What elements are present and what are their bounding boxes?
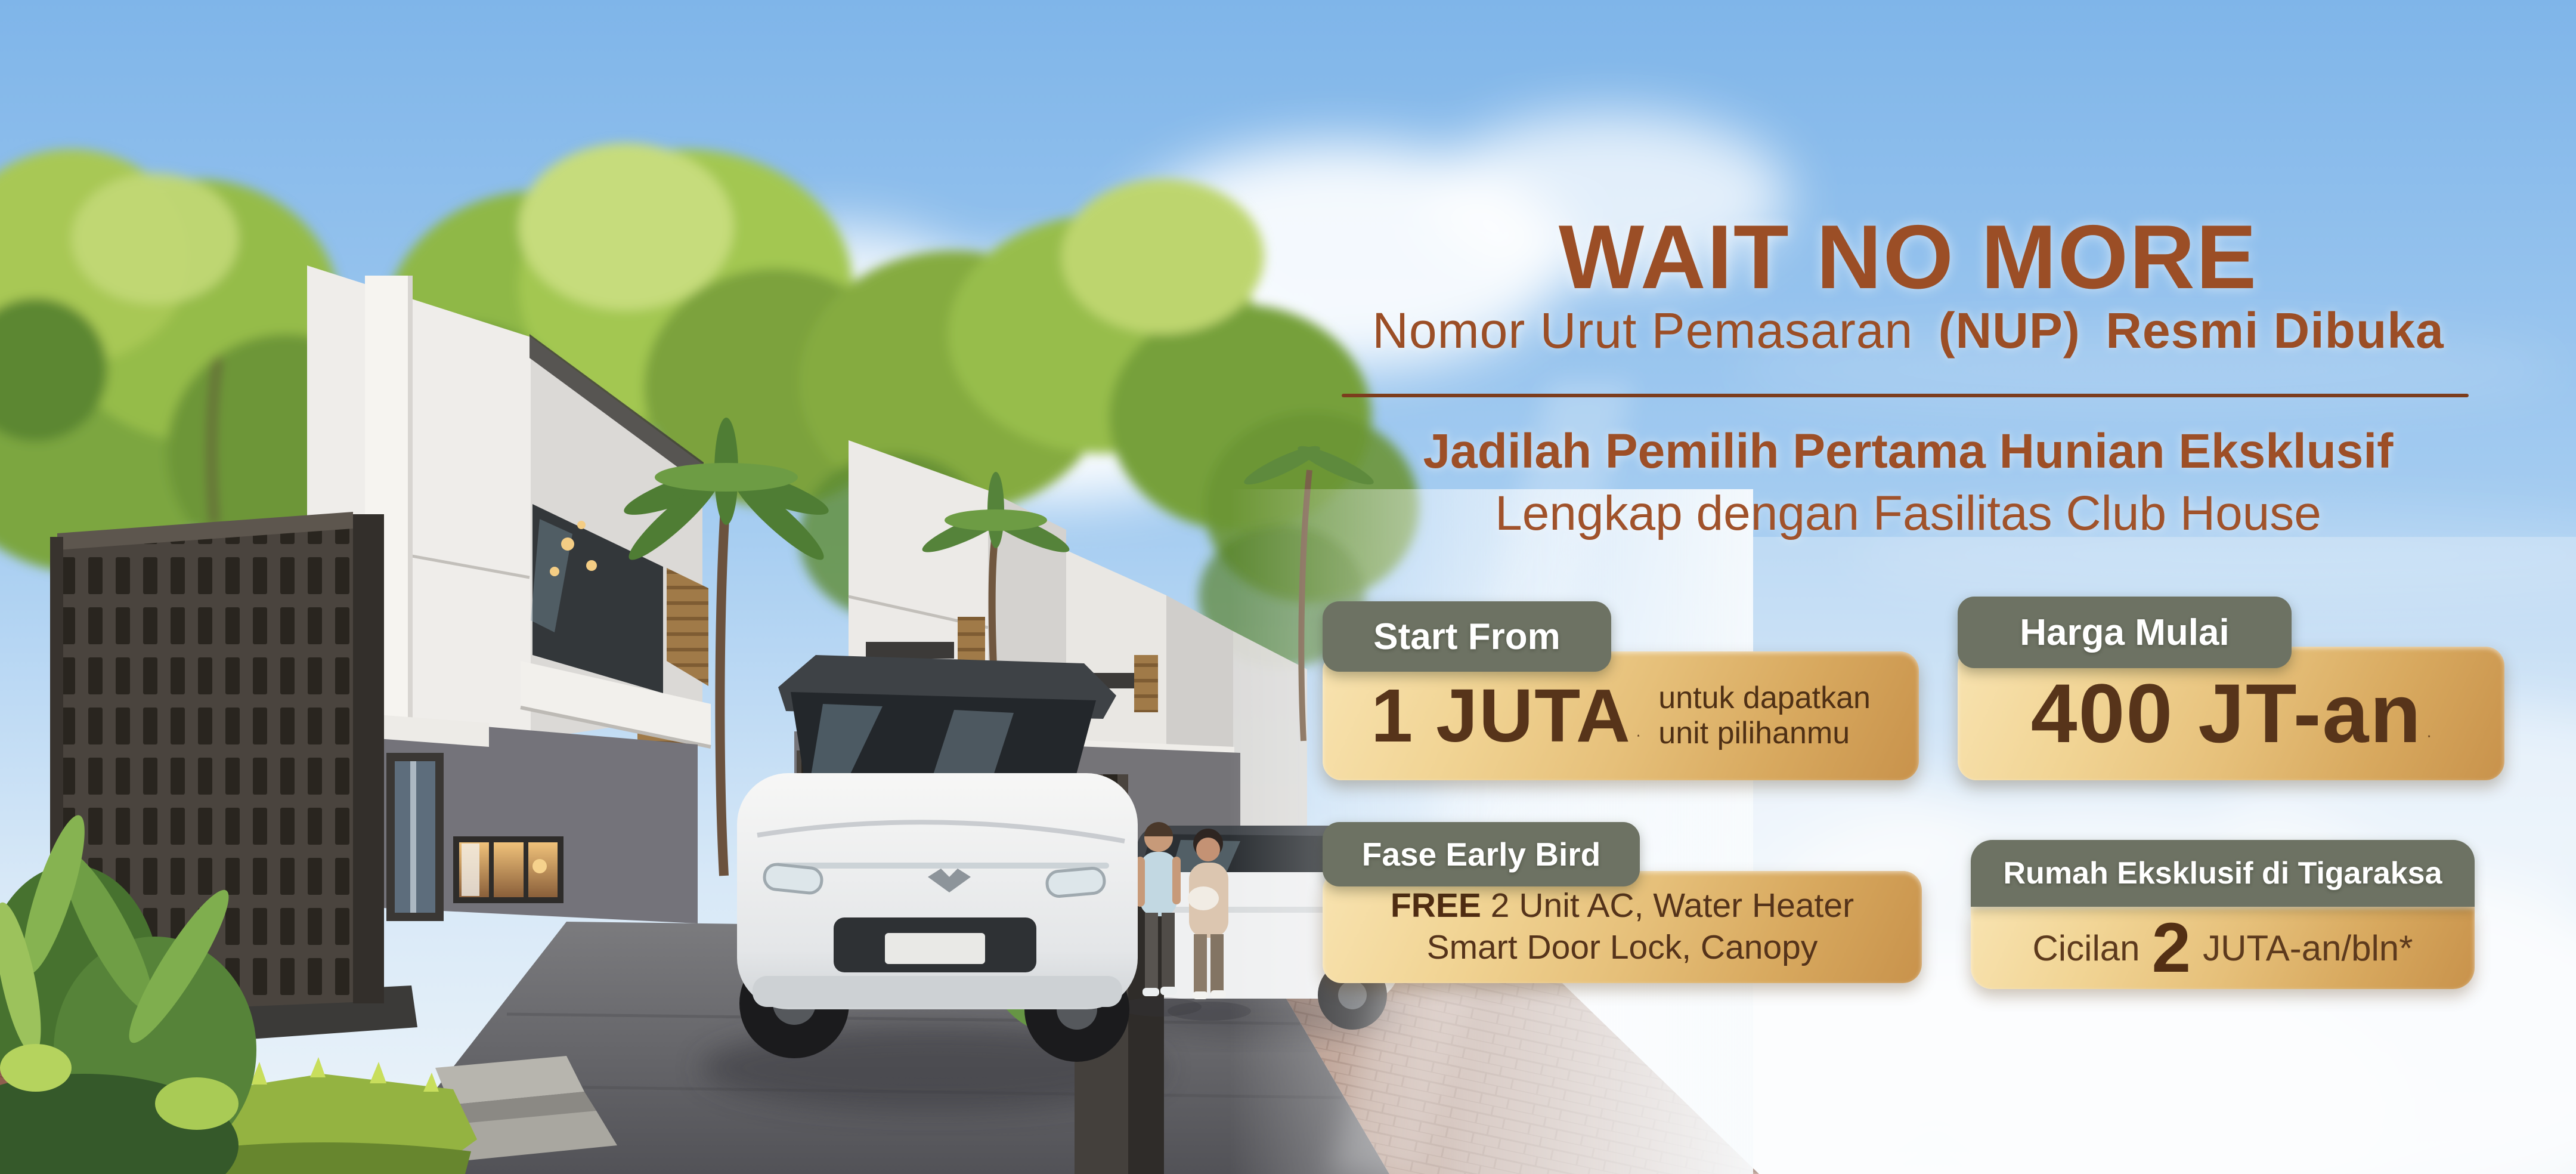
- offer-booking-tab-label: Start From: [1373, 616, 1560, 658]
- offer-price-tab-label: Harga Mulai: [2020, 611, 2229, 654]
- offer-installment-header-label: Rumah Eksklusif di Tigaraksa: [2004, 855, 2442, 891]
- offer-price-tab: Harga Mulai: [1958, 597, 2292, 668]
- divider-line: [1342, 394, 2469, 397]
- offer-booking-tab: Start From: [1323, 601, 1611, 672]
- tagline-regular: Lengkap dengan Fasilitas Club House: [1276, 486, 2540, 542]
- installment-prefix: Cicilan: [2032, 928, 2140, 969]
- offer-booking-note: untuk dapatkan unit pilihanmu: [1658, 681, 1871, 752]
- installment-amount: 2: [2152, 920, 2191, 976]
- asterisk: *: [1637, 734, 1640, 740]
- headline: WAIT NO MORE: [1276, 210, 2540, 305]
- subheadline-tail: Resmi Dibuka: [2106, 302, 2444, 359]
- offer-early-bird-tab-label: Fase Early Bird: [1362, 835, 1600, 873]
- installment-suffix: JUTA-an/bln*: [2203, 928, 2413, 969]
- free-label: FREE: [1391, 886, 1481, 925]
- offer-price-amount: 400 JT-an*: [2031, 672, 2432, 755]
- offer-early-bird-line2: Smart Door Lock, Canopy: [1427, 927, 1818, 969]
- offer-early-bird-card: FREE 2 Unit AC, Water Heater Smart Door …: [1323, 871, 1922, 983]
- offer-early-bird-line1: FREE 2 Unit AC, Water Heater: [1391, 885, 1854, 927]
- subheadline: Nomor Urut Pemasaran (NUP) Resmi Dibuka: [1276, 303, 2540, 358]
- subheadline-nup: (NUP): [1939, 302, 2080, 359]
- car-main: [737, 655, 1138, 1062]
- subheadline-regular: Nomor Urut Pemasaran: [1372, 302, 1913, 359]
- offer-early-bird-tab: Fase Early Bird: [1323, 822, 1640, 886]
- asterisk: *: [2428, 734, 2431, 740]
- promo-banner: 02: [0, 0, 2576, 1174]
- photo-scene: 02: [0, 0, 2576, 1174]
- offer-installment-header: Rumah Eksklusif di Tigaraksa: [1971, 840, 2475, 907]
- offer-installment-card: Cicilan 2 JUTA-an/bln*: [1971, 907, 2475, 989]
- offer-booking-amount: 1 JUTA*: [1371, 678, 1640, 753]
- tagline-bold: Jadilah Pemilih Pertama Hunian Eksklusif: [1276, 424, 2540, 480]
